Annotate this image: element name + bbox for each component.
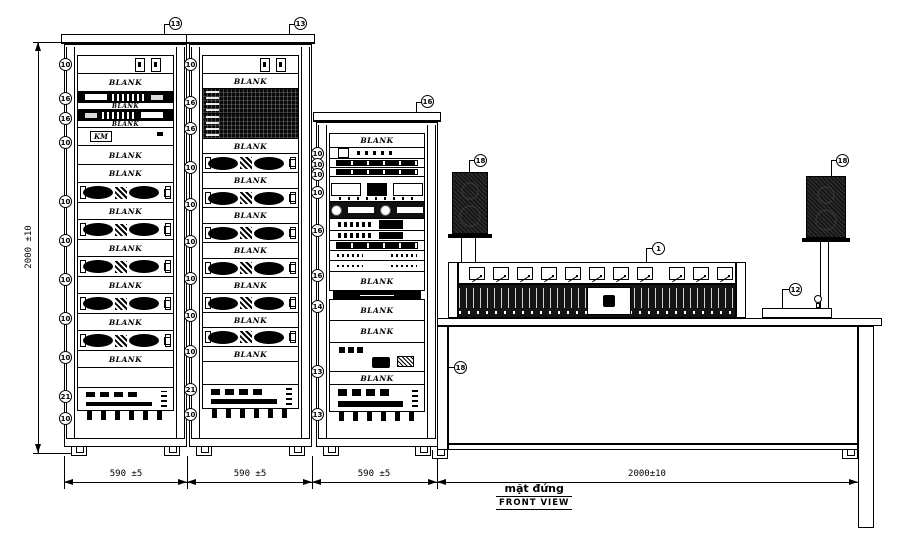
rack-top-cap (61, 34, 190, 44)
callout-balloon-speaker-left: 18 (474, 154, 487, 167)
blank-label: BLANK (234, 316, 267, 325)
dimension-line-height (38, 42, 39, 453)
drawing-title: mặt đứng FRONT VIEW (496, 482, 572, 510)
mixing-console (448, 262, 746, 318)
rack-unit-vent (339, 411, 415, 421)
callout-leader (782, 289, 789, 290)
table-top (436, 318, 882, 326)
callout-balloon-unit: 16 (311, 224, 324, 237)
rack-unit-amp (77, 182, 174, 203)
rack-unit-deck (329, 176, 425, 202)
rack-units: BLANKBLANKBLANKKMBLANKBLANKBLANKBLANKBLA… (77, 55, 174, 420)
rack-unit-amp (202, 188, 299, 208)
rack-unit-empty (202, 361, 299, 385)
dim-rack1-width: 590 ±5 (96, 469, 156, 479)
rack-unit-power (202, 384, 299, 409)
callout-balloon-unit: 16 (59, 112, 72, 125)
blank-label: BLANK (234, 281, 267, 290)
callout-balloon-unit: 21 (184, 383, 197, 396)
device-logo: KM (90, 131, 112, 142)
rack-unit-power (77, 387, 174, 411)
callout-leader (164, 24, 165, 34)
callout-balloon-mic: 12 (789, 283, 802, 296)
rack-unit-blank: BLANK (202, 277, 299, 294)
blank-label: BLANK (360, 306, 393, 315)
rack-unit-io (202, 55, 299, 74)
callout-balloon-unit: 10 (184, 345, 197, 358)
vu-meter (589, 267, 605, 280)
rack-units: BLANKBLANKBLANKBLANKBLANK (329, 133, 425, 421)
rack-unit-blank: BLANK (77, 164, 174, 183)
callout-balloon-unit: 10 (59, 136, 72, 149)
callout-balloon-unit: 10 (184, 235, 197, 248)
arrowhead (178, 479, 187, 485)
callout-leader (469, 160, 470, 172)
rack-base (191, 438, 310, 445)
rack-unit-amp (202, 153, 299, 173)
callout-balloon-table: 18 (454, 361, 467, 374)
blank-label: BLANK (360, 327, 393, 336)
vu-meter (717, 267, 733, 280)
vu-meter (693, 267, 709, 280)
rack-foot (164, 447, 180, 456)
callout-balloon-unit: 10 (184, 272, 197, 285)
vu-meter (469, 267, 485, 280)
rack-frame: BLANKBLANKBLANKBLANKBLANK101010101616141… (316, 122, 438, 447)
rack-unit-blank: BLANK (77, 350, 174, 368)
speaker-grille (452, 172, 488, 234)
rack-unit-blank: BLANK (77, 239, 174, 257)
title-local: mặt đứng (496, 482, 572, 497)
rack-1: 13BLANKBLANKBLANKKMBLANKBLANKBLANKBLANKB… (64, 34, 187, 460)
blank-label: BLANK (360, 136, 393, 145)
rack-frame: BLANKBLANKBLANKBLANKBLANKBLANKBLANKBLANK… (189, 44, 312, 447)
rack-top-cap (313, 112, 441, 122)
speaker-left: 18 (448, 154, 508, 264)
rack-unit-blank: BLANK (329, 133, 425, 148)
callout-balloon-unit: 16 (184, 96, 197, 109)
rack-unit-blank: BLANK (329, 371, 425, 385)
vu-meter (517, 267, 533, 280)
callout-balloon-unit: 10 (184, 58, 197, 71)
callout-leader (447, 367, 454, 368)
callout-balloon-unit: 10 (59, 195, 72, 208)
rack-rail-right (176, 47, 185, 444)
console-channel-strips (458, 284, 736, 318)
rack-unit-blank: BLANK (77, 145, 174, 165)
speaker-base (448, 234, 492, 238)
blank-label: BLANK (109, 244, 142, 253)
rack-units: BLANKBLANKBLANKBLANKBLANKBLANKBLANKBLANK (202, 55, 299, 418)
callout-balloon-unit: 13 (311, 408, 324, 421)
rack-unit-vent (87, 410, 164, 420)
callout-balloon-unit: 10 (311, 168, 324, 181)
arrowhead (35, 444, 41, 453)
arrowhead (64, 479, 73, 485)
console-cheek-right (736, 262, 746, 318)
arrowhead (303, 479, 312, 485)
rack-rail-right (301, 47, 310, 444)
drawing-canvas: 2000 ±10 590 ±5 590 ±5 590 ±5 2000±10 mặ… (0, 0, 900, 543)
rack-unit-amp (202, 327, 299, 347)
rack-unit-amp (77, 330, 174, 351)
rack-unit-cd (329, 201, 425, 219)
callout-balloon-speaker-right: 18 (836, 154, 849, 167)
callout-leader (646, 248, 647, 262)
callout-balloon-unit: 16 (184, 122, 197, 135)
callout-balloon-unit: 10 (59, 234, 72, 247)
rack-unit-blank: BLANK (202, 73, 299, 89)
blank-label: BLANK (109, 151, 142, 160)
speaker-base (802, 238, 850, 242)
blank-label: BLANK (234, 246, 267, 255)
callout-balloon-rack-2: 13 (294, 17, 307, 30)
callout-balloon-unit: 10 (184, 198, 197, 211)
callout-balloon-unit: 16 (311, 269, 324, 282)
vu-meter (493, 267, 509, 280)
rack-unit-blank: BLANK (202, 138, 299, 154)
arrowhead (35, 42, 41, 51)
callout-balloon-unit: 10 (184, 408, 197, 421)
rack-foot (415, 447, 431, 456)
mic-stand-group: 12 (762, 283, 842, 319)
blank-label: BLANK (109, 78, 142, 87)
rack-unit-vent (212, 408, 289, 418)
rack-unit-amp (202, 223, 299, 243)
blank-label: BLANK (109, 207, 142, 216)
title-english: FRONT VIEW (496, 497, 572, 510)
rack-unit-blank: BLANK (202, 172, 299, 189)
rack-top-cap (186, 34, 315, 44)
rack-unit-blank: BLANK (202, 242, 299, 259)
arrowhead (312, 479, 321, 485)
blank-label: BLANK (109, 318, 142, 327)
rack-unit-blank: BLANK (77, 73, 174, 92)
console-cheek-left (448, 262, 458, 318)
rack-unit-perf (202, 88, 299, 114)
vu-meter (613, 267, 629, 280)
rack-unit-blank: BLANK (329, 320, 425, 343)
callout-leader (831, 160, 832, 176)
console-master-knob (603, 295, 615, 307)
vu-meter (565, 267, 581, 280)
speaker-stand-leg (475, 238, 476, 262)
rack-unit-blank: BLANK (329, 299, 425, 321)
blank-label: BLANK (234, 211, 267, 220)
rack-unit-empty (77, 367, 174, 388)
callout-balloon-console: 1 (652, 242, 665, 255)
vu-meter (669, 267, 685, 280)
rack-unit-amp (202, 258, 299, 278)
microphone-head (814, 295, 822, 303)
rack-rail-right (427, 125, 436, 444)
callout-balloon-unit: 10 (184, 309, 197, 322)
table-left-post (437, 326, 448, 450)
rack-unit-blank: BLANK (202, 346, 299, 362)
rack-unit-amp (202, 293, 299, 313)
dim-table-width: 2000±10 (607, 469, 687, 479)
rack-unit-blank: BLANK (329, 271, 425, 291)
dim-height-label: 2000 ±10 (24, 212, 34, 282)
callout-balloon-rack-3: 16 (421, 95, 434, 108)
rack-foot (289, 447, 305, 456)
callout-leader (416, 102, 417, 112)
callout-balloon-unit: 21 (59, 390, 72, 403)
callout-leader (782, 289, 783, 308)
blank-label: BLANK (360, 277, 393, 286)
rack-unit-amp (77, 256, 174, 277)
callout-leader (289, 24, 290, 34)
callout-balloon-unit: 10 (59, 58, 72, 71)
rack-frame: BLANKBLANKBLANKKMBLANKBLANKBLANKBLANKBLA… (64, 44, 187, 447)
rack-unit-power (329, 384, 425, 412)
vu-meter (541, 267, 557, 280)
blank-label: BLANK (234, 77, 267, 86)
console-master-section (587, 287, 631, 315)
callout-balloon-unit: 10 (184, 161, 197, 174)
speaker-grille (806, 176, 846, 238)
table-front-panel (448, 326, 858, 444)
rack-unit-blank: BLANK (77, 276, 174, 294)
blank-label: BLANK (109, 281, 142, 290)
rack-2: 13BLANKBLANKBLANKBLANKBLANKBLANKBLANKBLA… (189, 34, 312, 460)
console-meter-row (458, 262, 736, 284)
rack-unit-amp (77, 293, 174, 314)
blank-label: BLANK (234, 142, 267, 151)
dim-rack3-width: 590 ±5 (344, 469, 404, 479)
table-foot-right (842, 450, 858, 459)
rack-foot (323, 447, 339, 456)
arrowhead (428, 479, 437, 485)
callout-balloon-unit: 10 (59, 351, 72, 364)
speaker-stand-leg (461, 238, 462, 262)
vu-meter (637, 267, 653, 280)
rack-base (318, 438, 436, 445)
mic-riser-platform (762, 308, 832, 318)
blank-label: BLANK (234, 350, 267, 359)
arrowhead (437, 479, 446, 485)
blank-label: BLANK (109, 355, 142, 364)
callout-balloon-unit: 14 (311, 300, 324, 313)
callout-balloon-unit: 13 (311, 365, 324, 378)
rack-unit-amp (77, 219, 174, 240)
callout-balloon-unit: 10 (59, 273, 72, 286)
rack-foot (71, 447, 87, 456)
callout-balloon-unit: 10 (311, 186, 324, 199)
blank-label: BLANK (109, 169, 142, 178)
arrowhead (849, 479, 858, 485)
dim-rack2-width: 590 ±5 (220, 469, 280, 479)
rack-foot (196, 447, 212, 456)
rack-unit-logo: KM (77, 127, 174, 146)
rack-unit-io (77, 55, 174, 74)
rack-unit-dev2u (329, 342, 425, 372)
callout-balloon-rack-1: 13 (169, 17, 182, 30)
callout-balloon-unit: 10 (59, 312, 72, 325)
rack-base (66, 438, 185, 445)
blank-label: BLANK (360, 374, 393, 383)
callout-balloon-unit: 16 (59, 92, 72, 105)
rack-unit-blank: BLANK (202, 312, 299, 328)
table-right-post (858, 326, 874, 528)
callout-balloon-unit: 10 (59, 412, 72, 425)
rack-unit-perf (202, 113, 299, 139)
rack-unit-blank: BLANK (77, 202, 174, 220)
rack-3: 16BLANKBLANKBLANKBLANKBLANK1010101016161… (316, 112, 438, 460)
arrowhead (187, 479, 196, 485)
rack-unit-blank: BLANK (202, 207, 299, 224)
rack-unit-blank: BLANK (77, 313, 174, 331)
blank-label: BLANK (234, 176, 267, 185)
table-bottom-rail (448, 444, 858, 450)
